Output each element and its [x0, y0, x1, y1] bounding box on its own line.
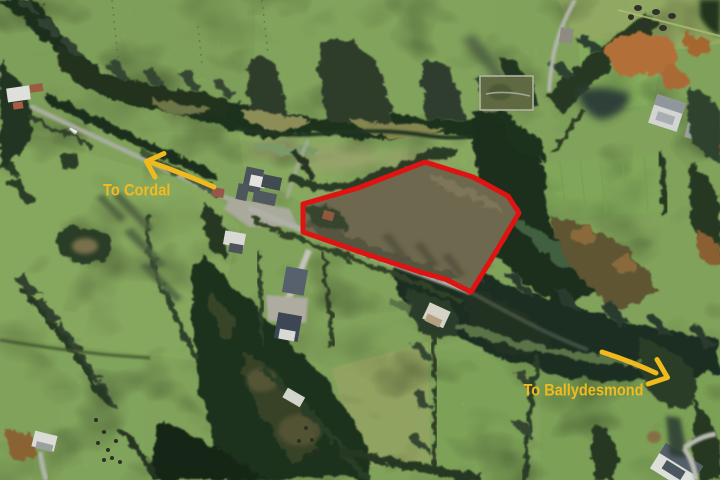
svg-text:To Cordal: To Cordal	[103, 181, 171, 200]
svg-text:To Ballydesmond: To Ballydesmond	[524, 381, 644, 400]
